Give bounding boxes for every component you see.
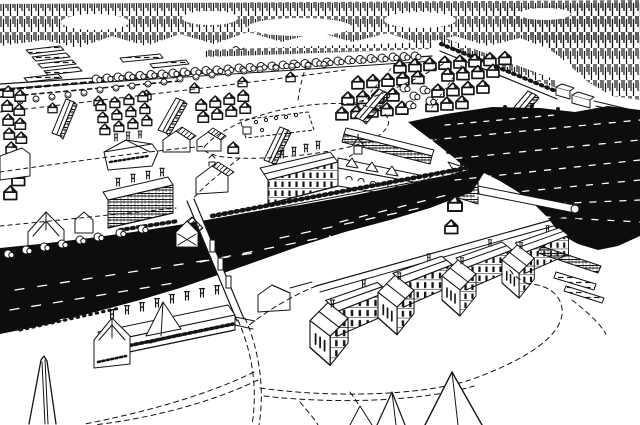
engraving-stage bbox=[0, 0, 640, 425]
illustration-canvas bbox=[0, 0, 640, 425]
